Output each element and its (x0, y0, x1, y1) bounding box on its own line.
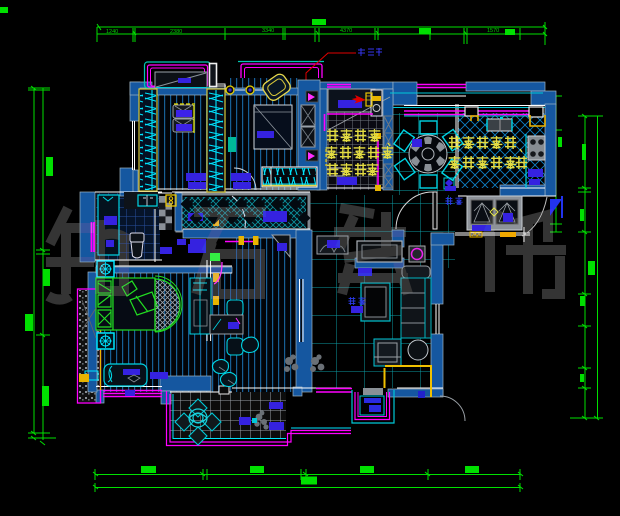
svg-text:2380: 2380 (170, 29, 182, 35)
svg-text:1570: 1570 (487, 28, 499, 34)
svg-text:1240: 1240 (106, 29, 118, 35)
svg-text:3340: 3340 (262, 28, 274, 34)
svg-text:4370: 4370 (340, 28, 352, 34)
